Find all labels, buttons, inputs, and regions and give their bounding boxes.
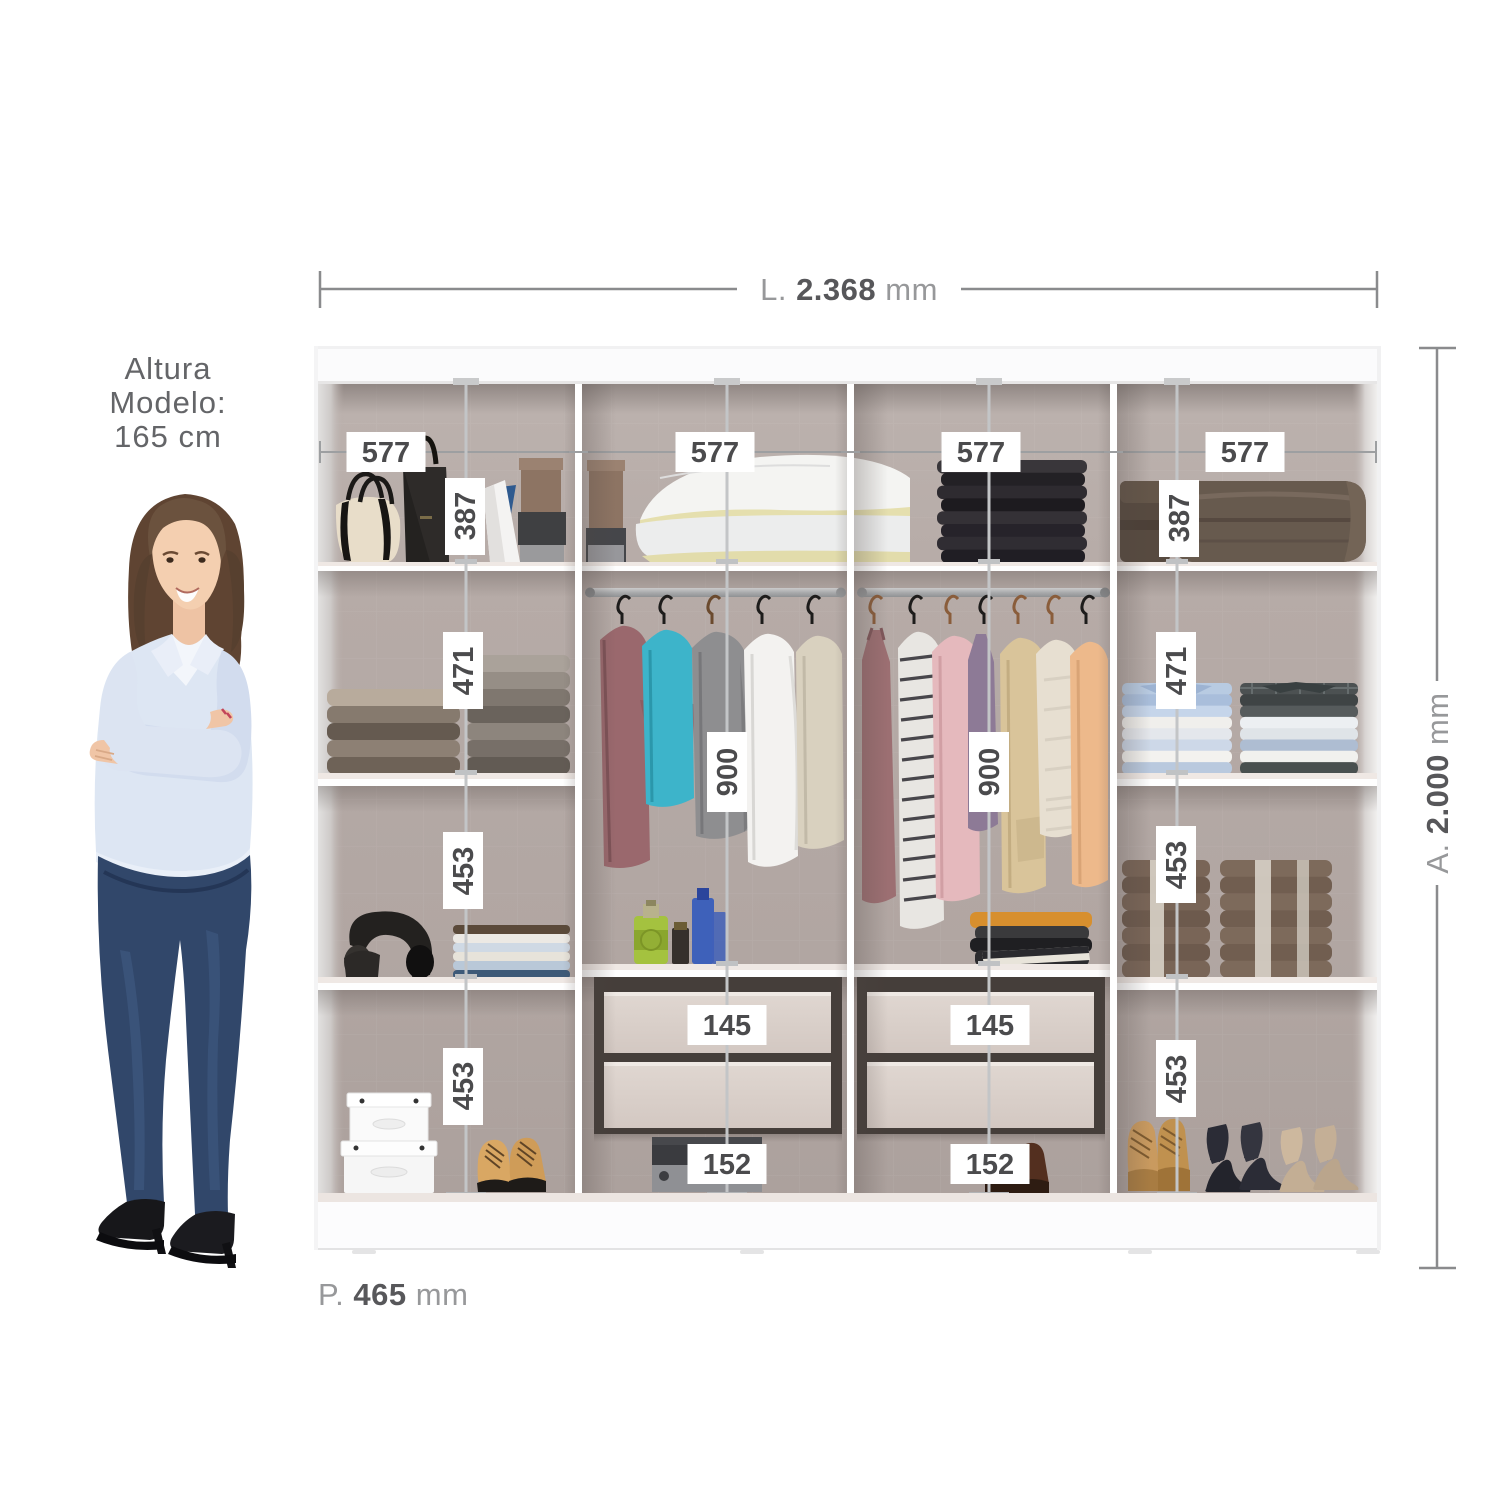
svg-text:P. 465 mm: P. 465 mm <box>318 1277 468 1312</box>
svg-text:152: 152 <box>703 1149 751 1181</box>
svg-text:577: 577 <box>957 437 1005 469</box>
svg-text:900: 900 <box>712 748 744 796</box>
svg-text:Modelo:: Modelo: <box>109 385 226 420</box>
svg-text:453: 453 <box>448 847 480 895</box>
svg-text:L. 2.368 mm: L. 2.368 mm <box>760 272 938 307</box>
svg-text:453: 453 <box>448 1062 480 1110</box>
svg-text:453: 453 <box>1161 841 1193 889</box>
svg-text:577: 577 <box>691 437 739 469</box>
svg-text:471: 471 <box>1161 647 1193 695</box>
svg-text:152: 152 <box>966 1149 1014 1181</box>
svg-text:577: 577 <box>1221 437 1269 469</box>
svg-text:900: 900 <box>974 748 1006 796</box>
svg-text:471: 471 <box>448 647 480 695</box>
svg-text:387: 387 <box>1164 494 1196 542</box>
svg-text:145: 145 <box>703 1010 751 1042</box>
svg-text:145: 145 <box>966 1010 1014 1042</box>
svg-text:453: 453 <box>1161 1055 1193 1103</box>
svg-text:165 cm: 165 cm <box>114 419 222 454</box>
svg-text:577: 577 <box>362 437 410 469</box>
svg-text:Altura: Altura <box>125 351 212 386</box>
svg-text:A. 2.000 mm: A. 2.000 mm <box>1420 692 1455 873</box>
svg-text:387: 387 <box>450 492 482 540</box>
